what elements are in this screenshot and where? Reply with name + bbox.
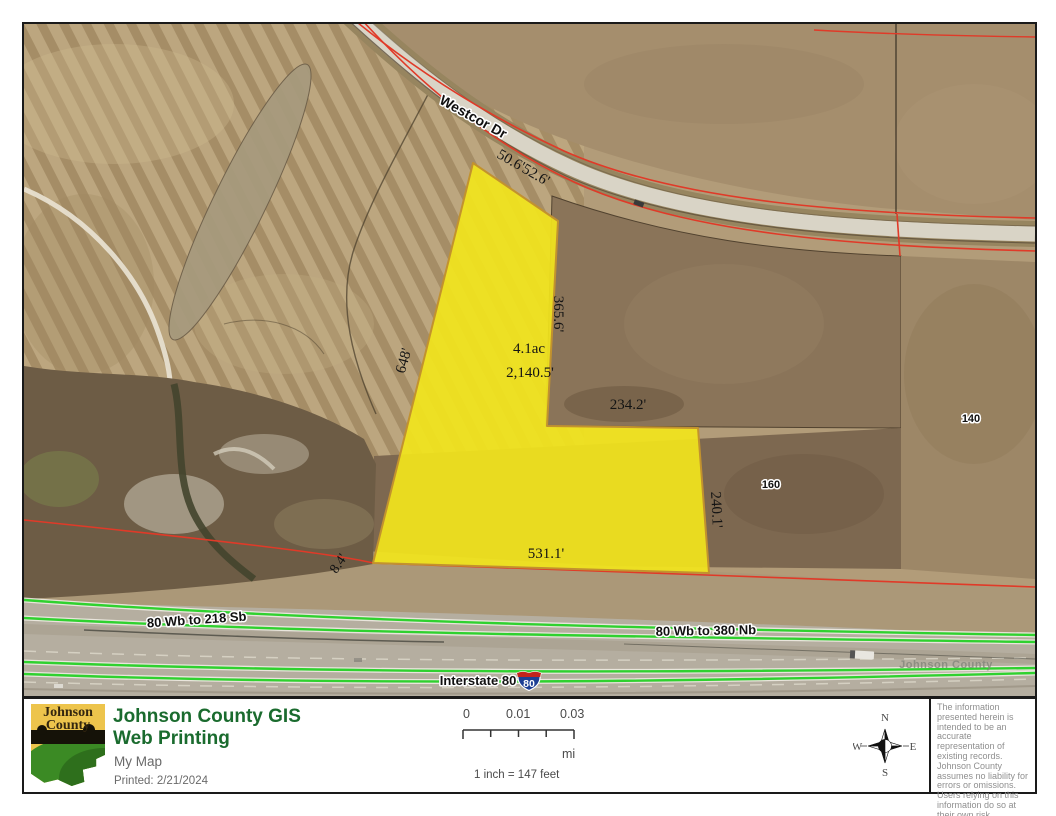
label-south: 531.1' xyxy=(528,546,565,562)
svg-text:80: 80 xyxy=(523,678,535,690)
print-footer: Johnson County Johnson County GIS Web Pr… xyxy=(22,697,1037,794)
scale-tick-0: 0 xyxy=(463,707,470,721)
label-area: 4.1ac xyxy=(513,341,545,357)
scale-unit: mi xyxy=(562,747,575,761)
county-watermark: Johnson County xyxy=(899,659,993,671)
svg-text:W: W xyxy=(853,741,863,753)
svg-text:S: S xyxy=(882,767,888,779)
disclaimer-text: The information presented herein is inte… xyxy=(929,699,1035,792)
scale-equivalence: 1 inch = 147 feet xyxy=(474,769,559,781)
gis-print-page: 50.6'52.6' 365.6' 4.1ac 2,140.5' 234.2' … xyxy=(0,0,1056,816)
scale-bar: 0 0.01 0.03 mi 1 inch = 147 feet xyxy=(460,707,600,787)
svg-text:N: N xyxy=(881,712,889,724)
johnson-county-logo: Johnson County xyxy=(31,704,105,786)
label-interstate-80: Interstate 80 xyxy=(440,673,517,688)
label-ramp-nb: 80 Wb to 380 Nb xyxy=(656,622,757,639)
map-name: My Map xyxy=(114,754,162,769)
logo-text: Johnson County xyxy=(31,706,105,732)
label-north-inner: 234.2' xyxy=(610,397,647,413)
label-east-upper: 365.6' xyxy=(550,296,566,333)
compass-rose-icon: N S E W xyxy=(853,709,917,781)
svg-text:E: E xyxy=(910,741,917,753)
label-perimeter: 2,140.5' xyxy=(506,365,554,381)
printed-date: Printed: 2/21/2024 xyxy=(114,775,208,787)
scale-tick-2: 0.03 xyxy=(560,707,584,721)
scale-tick-1: 0.01 xyxy=(506,707,530,721)
badge-lot-160: 160 xyxy=(762,479,780,491)
page-title: Johnson County GIS Web Printing xyxy=(113,706,301,750)
badge-lot-140: 140 xyxy=(962,413,980,425)
map-viewport: 50.6'52.6' 365.6' 4.1ac 2,140.5' 234.2' … xyxy=(22,22,1037,698)
scale-ruler xyxy=(460,727,580,741)
label-east-lower: 240.1' xyxy=(707,491,725,529)
